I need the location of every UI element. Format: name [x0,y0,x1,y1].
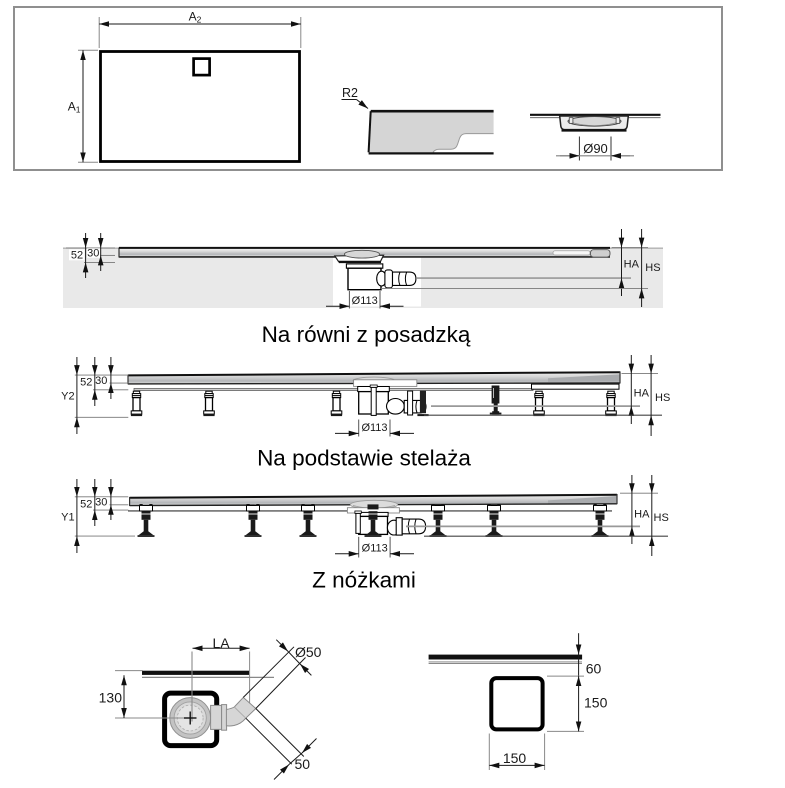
svg-text:Na równi z posadzką: Na równi z posadzką [262,322,471,347]
svg-text:HA: HA [634,388,650,400]
svg-text:Ø50: Ø50 [295,644,322,660]
svg-text:Ø113: Ø113 [362,543,388,555]
svg-text:LA: LA [212,635,230,651]
svg-text:30: 30 [95,375,107,387]
svg-text:Na podstawie stelaża: Na podstawie stelaża [257,446,471,471]
svg-text:Y1: Y1 [61,511,74,523]
svg-text:52: 52 [71,250,83,262]
svg-text:HA: HA [624,258,640,270]
svg-text:Y2: Y2 [61,391,74,403]
svg-text:30: 30 [95,497,107,509]
svg-text:52: 52 [80,499,92,511]
svg-text:60: 60 [586,661,602,677]
svg-text:150: 150 [503,750,527,766]
svg-text:Ø113: Ø113 [361,422,387,434]
svg-text:HS: HS [645,262,660,274]
svg-text:HS: HS [655,392,670,404]
svg-text:50: 50 [295,756,311,772]
svg-text:130: 130 [99,690,123,706]
svg-text:52: 52 [80,377,92,389]
svg-text:30: 30 [87,248,99,260]
svg-text:HS: HS [654,512,669,524]
svg-text:Ø113: Ø113 [352,295,378,307]
svg-text:R2: R2 [342,86,358,100]
svg-text:HA: HA [634,509,650,521]
svg-text:Z nóżkami: Z nóżkami [312,568,416,593]
svg-text:150: 150 [584,695,608,711]
svg-text:Ø90: Ø90 [583,141,608,156]
